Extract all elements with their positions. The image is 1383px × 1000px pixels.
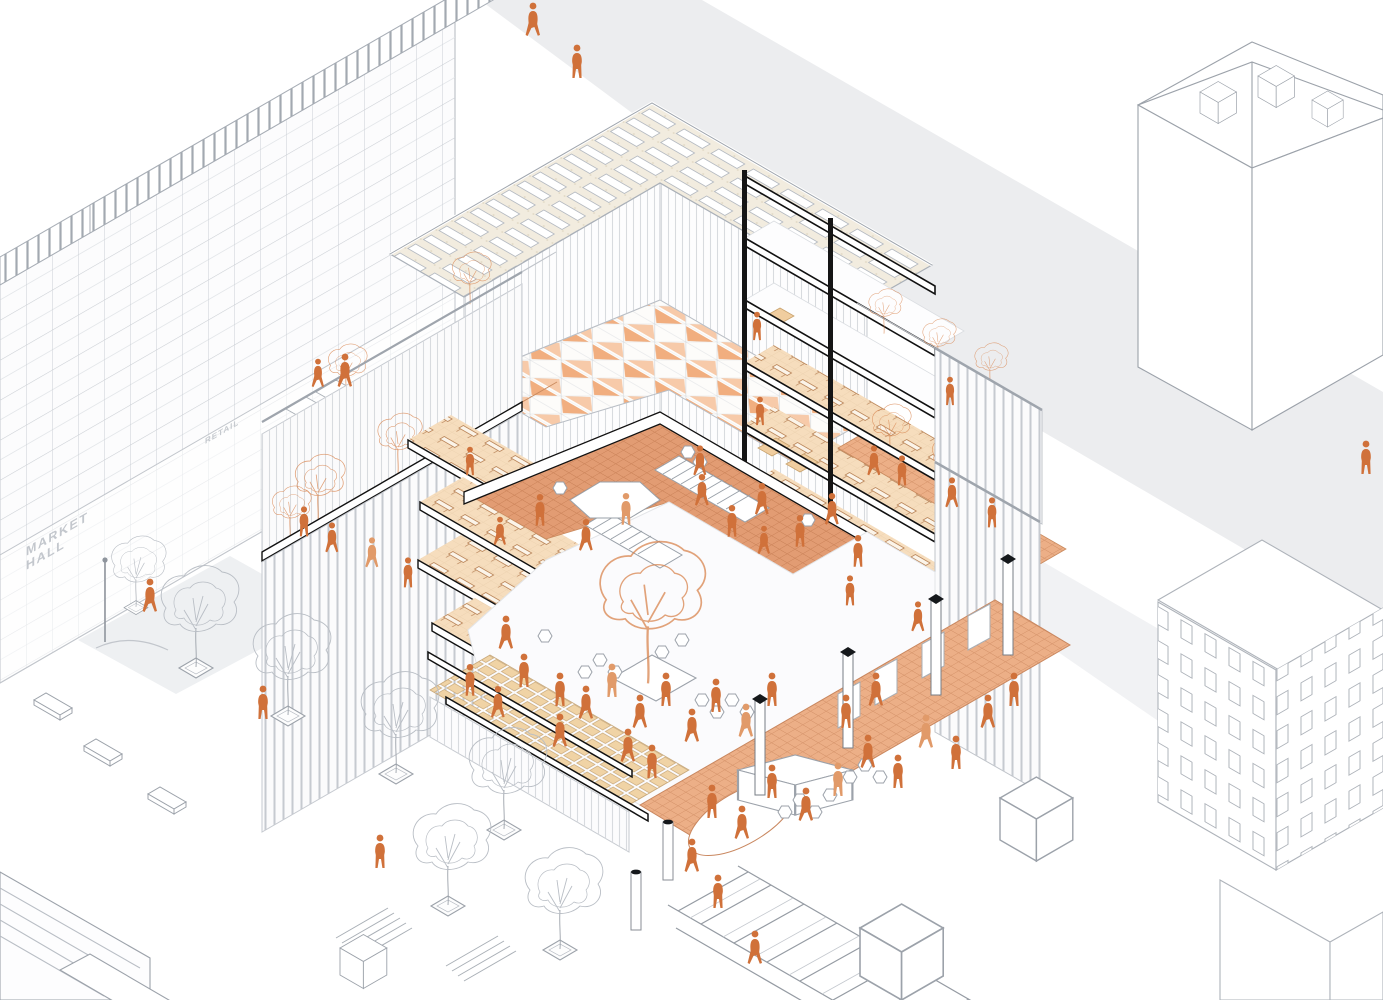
top-right-tower — [1138, 42, 1383, 430]
poster-cylinder — [663, 820, 673, 880]
axonometric-drawing: MARKETHALL RETAIL — [0, 0, 1383, 1000]
architectural-axonometric-illustration: MARKETHALL RETAIL — [0, 0, 1383, 1000]
poster-cylinder — [631, 870, 641, 930]
mezz-pouf — [681, 446, 695, 458]
mezz-pouf — [553, 482, 567, 494]
mezz-pouf — [801, 514, 815, 526]
